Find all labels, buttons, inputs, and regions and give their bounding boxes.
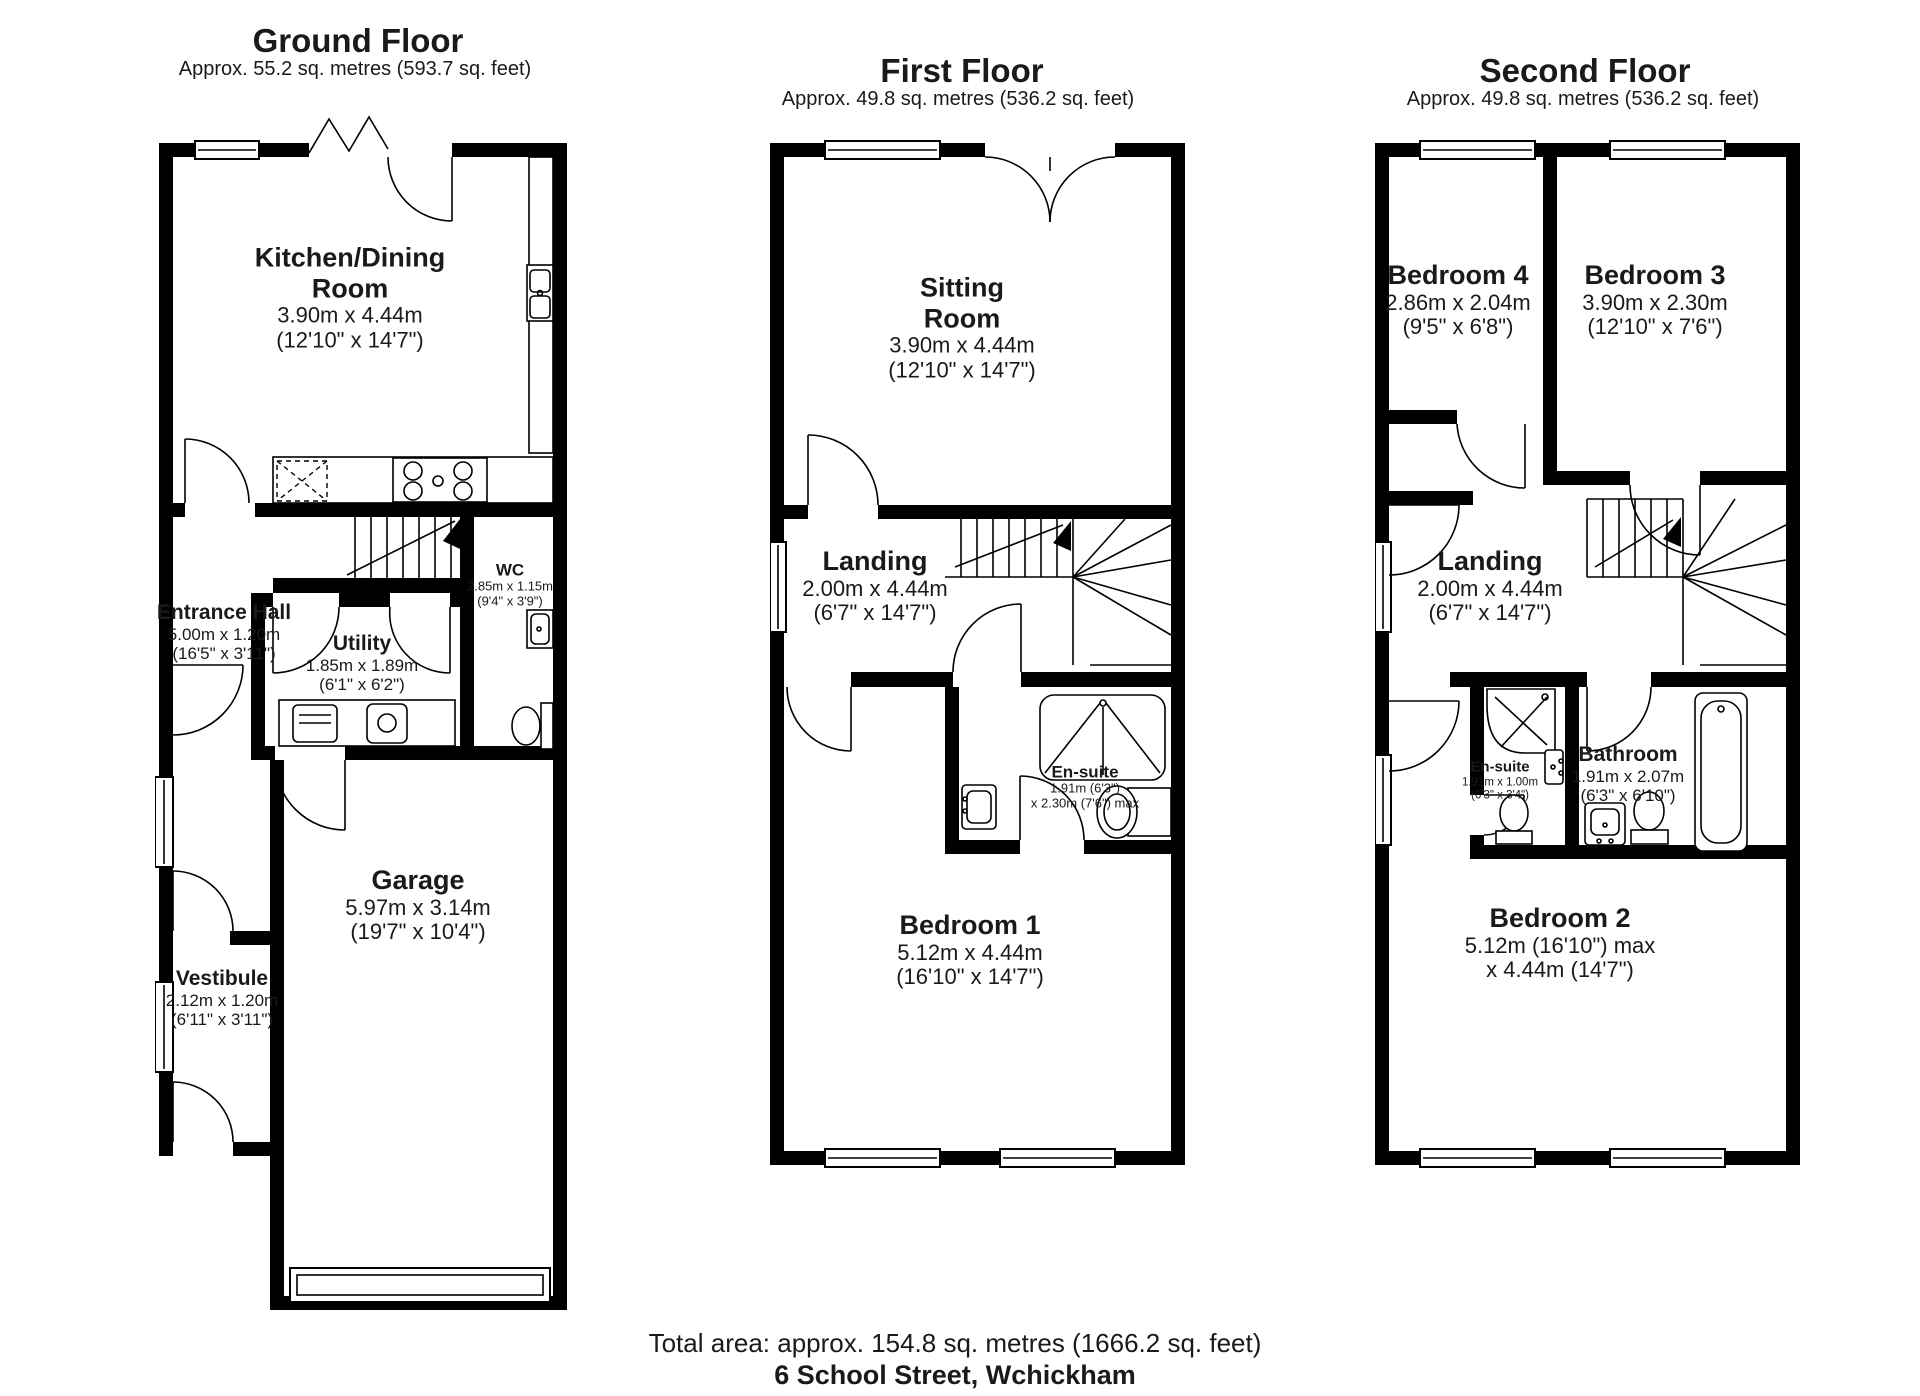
window-icon: [1420, 141, 1535, 159]
window-icon: [1000, 1149, 1115, 1167]
door-arc: [275, 760, 345, 830]
room-label-second-landing: Landing 2.00m x 4.44m (6'7" x 14'7"): [1417, 546, 1563, 626]
wc-sink-icon: [527, 610, 553, 648]
basin-icon: [962, 785, 996, 829]
room-label-entrance-hall: Entrance Hall 5.00m x 1.20m (16'5" x 3'1…: [157, 601, 292, 663]
window-icon: [1610, 141, 1725, 159]
window-icon: [1375, 542, 1391, 632]
door-arc: [808, 435, 878, 505]
second-staircase: [1587, 499, 1786, 665]
door-arc: [1630, 485, 1700, 555]
garage-door-icon: [290, 1268, 550, 1302]
room-label-utility: Utility 1.85m x 1.89m (6'1" x 6'2"): [306, 632, 418, 694]
floorplan-page: { "document": { "footer": { "total_area"…: [0, 0, 1920, 1396]
room-label-garage: Garage 5.97m x 3.14m (19'7" x 10'4"): [345, 865, 491, 945]
door-arc: [173, 1082, 233, 1142]
room-label-first-landing: Landing 2.00m x 4.44m (6'7" x 14'7"): [802, 546, 948, 626]
ground-floor-subtitle: Approx. 55.2 sq. metres (593.7 sq. feet): [179, 58, 531, 81]
door-arc: [953, 604, 1021, 672]
hob-icon: [393, 458, 487, 502]
door-arc: [185, 439, 249, 503]
total-area-text: Total area: approx. 154.8 sq. metres (16…: [649, 1328, 1262, 1359]
first-staircase: [945, 519, 1171, 665]
bifold-door-icon: [309, 117, 388, 153]
utility-sink-icon: [293, 705, 337, 742]
door-arc: [787, 687, 851, 751]
first-floor-title: First Floor: [880, 52, 1043, 90]
ground-utility-fixtures: [279, 700, 455, 746]
room-label-kitchen: Kitchen/Dining Room 3.90m x 4.44m (12'10…: [238, 243, 463, 354]
corner-shower-icon: [1487, 689, 1555, 753]
window-icon: [1420, 1149, 1535, 1167]
ground-floor-title: Ground Floor: [253, 22, 464, 60]
basin-icon: [1545, 750, 1563, 784]
window-icon: [155, 777, 173, 867]
window-icon: [825, 1149, 940, 1167]
room-label-bedroom-1: Bedroom 1 5.12m x 4.44m (16'10" x 14'7"): [896, 910, 1044, 990]
door-arc: [173, 665, 243, 735]
bathtub-icon: [1695, 693, 1747, 851]
basin-icon: [1585, 803, 1625, 845]
door-arc: [1457, 424, 1525, 488]
window-icon: [825, 141, 940, 159]
room-label-wc: WC 2.85m x 1.15m (9'4" x 3'9"): [467, 561, 553, 610]
room-label-bedroom-2: Bedroom 2 5.12m (16'10") max x 4.44m (14…: [1465, 903, 1656, 983]
room-label-bathroom: Bathroom 1.91m x 2.07m (6'3" x 6'10"): [1572, 743, 1684, 805]
ground-staircase: [347, 517, 460, 578]
room-label-sitting-room: Sitting Room 3.90m x 4.44m (12'10" x 14'…: [887, 273, 1037, 384]
window-icon: [195, 141, 259, 159]
door-arc: [1587, 687, 1651, 751]
kitchen-sink-icon: [527, 265, 553, 321]
address-text: 6 School Street, Wchickham: [774, 1360, 1136, 1391]
room-label-first-ensuite: En-suite 1.91m (6'3") x 2.30m (7'6") max: [1031, 763, 1139, 812]
toilet-icon: [512, 703, 553, 749]
second-floor-title: Second Floor: [1480, 52, 1691, 90]
room-label-bedroom-3: Bedroom 3 3.90m x 2.30m (12'10" x 7'6"): [1582, 260, 1728, 340]
door-arc: [1389, 701, 1459, 771]
ground-wc-fixtures: [512, 610, 553, 749]
washer-icon: [367, 704, 407, 743]
french-doors-icon: [985, 157, 1115, 222]
appliance-space-icon: [277, 461, 327, 501]
room-label-vestibule: Vestibule 2.12m x 1.20m (6'11" x 3'11"): [166, 967, 278, 1029]
window-icon: [770, 542, 786, 632]
room-label-bedroom-4: Bedroom 4 2.86m x 2.04m (9'5" x 6'8"): [1385, 260, 1531, 340]
room-label-second-ensuite: En-suite 1.91m x 1.00m (6'3" x 3'4"): [1462, 760, 1538, 803]
door-arc: [173, 871, 233, 931]
window-icon: [1610, 1149, 1725, 1167]
window-icon: [1375, 755, 1391, 845]
door-arc: [388, 157, 452, 221]
